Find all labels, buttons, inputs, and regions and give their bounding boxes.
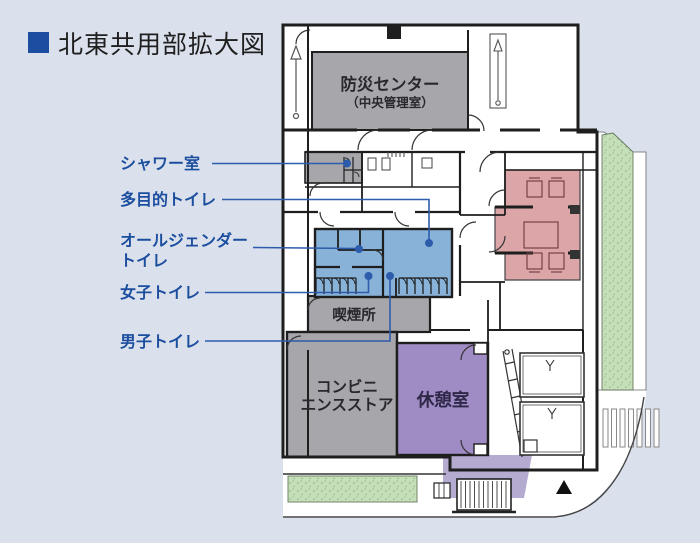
- room-lounge-pink: [495, 170, 580, 280]
- green-strip-south: [288, 476, 417, 502]
- label-smoking-area: 喫煙所: [332, 306, 376, 324]
- callout-label-all-gender-1: オールジェンダー: [120, 231, 248, 250]
- callout-label-multipurpose: 多目的トイレ: [120, 190, 216, 209]
- callout-label-men: 男子トイレ: [120, 333, 200, 351]
- label-disaster-center: 防災センター: [341, 74, 440, 94]
- title-square-icon: [28, 32, 49, 53]
- callout-label-women: 女子トイレ: [120, 283, 200, 302]
- title-text: 北東共用部拡大図: [58, 31, 266, 59]
- crosswalk-bars: [603, 409, 659, 447]
- callout-line-all-gender: [253, 248, 356, 249]
- callout-dot-men: [386, 272, 394, 280]
- page: 防災センター （中央管理室） 喫煙所 コンビニ エンスストア 休憩室 シャワー室…: [0, 0, 700, 543]
- callout-label-shower: シャワー室: [120, 154, 200, 173]
- callout-dot-all-gender: [355, 245, 363, 253]
- callout-dot-multipurpose: [425, 239, 433, 247]
- void-rooms: [520, 353, 584, 455]
- label-convenience-store-1: コンビニ: [316, 378, 378, 396]
- green-strip-east: [602, 133, 633, 390]
- label-convenience-store-2: エンスストア: [301, 397, 394, 414]
- callout-dot-women: [365, 272, 373, 280]
- stair-shaft-icon: [490, 34, 506, 108]
- label-rest-room: 休憩室: [416, 390, 470, 410]
- label-disaster-center-sub: （中央管理室）: [346, 95, 434, 110]
- callout-label-all-gender-2: トイレ: [120, 253, 168, 270]
- callout-dot-shower: [343, 160, 351, 168]
- page-title: 北東共用部拡大図: [28, 31, 266, 59]
